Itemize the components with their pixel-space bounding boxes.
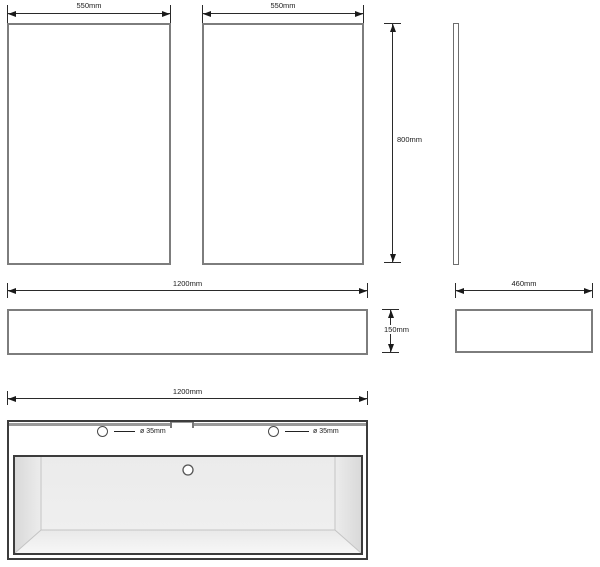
dim-label-panel-height: 800mm: [396, 135, 423, 144]
basin-bowl: [13, 455, 363, 555]
basin-top-view: ø 35mm ø 35mm: [7, 420, 368, 560]
panel-right-front-view: [202, 23, 364, 265]
back-edge-notch-line: [171, 422, 193, 423]
arrowhead-right-icon: [359, 396, 367, 402]
arrowhead-right-icon: [584, 288, 592, 294]
drain-hole-circle: [183, 465, 193, 475]
arrowhead-up-icon: [390, 24, 396, 32]
arrowhead-up-icon: [388, 310, 394, 318]
arrowhead-down-icon: [388, 344, 394, 352]
arrowhead-down-icon: [390, 254, 396, 262]
dim-label-panel-left-width: 550mm: [7, 1, 171, 10]
dim-line: [392, 24, 393, 262]
dim-tick: [382, 352, 399, 353]
tap-hole-left-label: ø 35mm: [140, 428, 166, 436]
panel-left-front-view: [7, 23, 171, 265]
arrowhead-left-icon: [456, 288, 464, 294]
dim-plinth-height: 150mm: [382, 309, 399, 353]
basin-bowl-render: [15, 457, 361, 553]
technical-drawing-canvas: 550mm 550mm 800mm 1200mm: [0, 0, 600, 567]
dim-line: [8, 13, 170, 14]
tap-hole-left-circle: [97, 426, 108, 437]
tap-hole-right-label: ø 35mm: [313, 428, 339, 436]
dim-panel-height: 800mm: [384, 23, 401, 263]
dim-label-panel-right-width: 550mm: [202, 1, 364, 10]
arrowhead-left-icon: [203, 11, 211, 17]
dim-line: [203, 13, 363, 14]
notch-tick-left: [170, 422, 172, 428]
dim-label-basin-width: 1200mm: [7, 387, 368, 396]
basin-front-slope: [15, 530, 361, 553]
dim-label-plinth-height: 150mm: [383, 325, 410, 334]
arrowhead-left-icon: [8, 288, 16, 294]
panel-side-profile-view: [453, 23, 459, 265]
plinth-side-view: [455, 309, 593, 353]
arrowhead-left-icon: [8, 11, 16, 17]
tap-hole-right-circle: [268, 426, 279, 437]
dim-label-plinth-width: 1200mm: [7, 279, 368, 288]
tap-hole-right-leader-line: [285, 431, 309, 432]
arrowhead-right-icon: [359, 288, 367, 294]
dim-label-side-depth: 460mm: [455, 279, 593, 288]
dim-line: [8, 398, 367, 399]
back-edge-band-right: [192, 423, 366, 426]
back-edge-band-left: [9, 423, 172, 426]
dim-line: [456, 290, 592, 291]
arrowhead-right-icon: [162, 11, 170, 17]
dim-tick: [384, 262, 401, 263]
plinth-front-view: [7, 309, 368, 355]
tap-hole-left-leader-line: [114, 431, 135, 432]
notch-tick-right: [192, 422, 194, 428]
dim-line: [8, 290, 367, 291]
arrowhead-right-icon: [355, 11, 363, 17]
arrowhead-left-icon: [8, 396, 16, 402]
